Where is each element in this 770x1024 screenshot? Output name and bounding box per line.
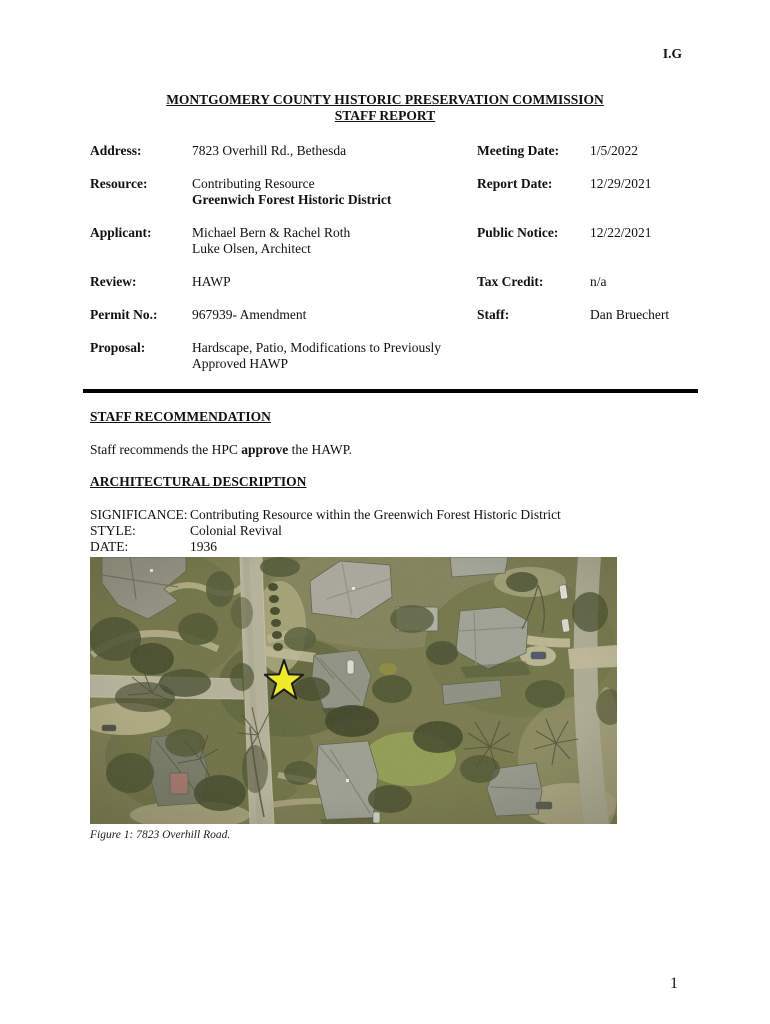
info-table: Address:7823 Overhill Rd., BethesdaMeeti… [90,143,702,372]
field-label: Review: [90,274,192,290]
field-value: 12/22/2021 [590,225,702,241]
field-value-line: Hardscape, Patio, Modifications to Previ… [192,340,477,372]
field-value-line: 967939- Amendment [192,307,477,323]
field-label: Public Notice: [477,225,590,241]
field-label: Staff: [477,307,590,323]
title-line-2: STAFF REPORT [335,108,435,123]
aerial-photo [90,557,617,824]
recommendation-heading: STAFF RECOMMENDATION [90,409,702,425]
page-number: 1 [670,976,678,992]
recommendation-text-bold: approve [241,442,288,457]
field-value-line: 7823 Overhill Rd., Bethesda [192,143,477,159]
field-label: Permit No.: [90,307,192,323]
section-divider [83,389,698,393]
field-label: Address: [90,143,192,159]
field-value: 7823 Overhill Rd., Bethesda [192,143,477,159]
info-table-row: Applicant:Michael Bern & Rachel RothLuke… [90,225,702,257]
field-value: HAWP [192,274,477,290]
document-content: Address:7823 Overhill Rd., BethesdaMeeti… [90,143,702,842]
detail-label: DATE: [90,539,190,555]
field-value-line: Luke Olsen, Architect [192,241,477,257]
field-value: Hardscape, Patio, Modifications to Previ… [192,340,477,372]
description-heading-text: ARCHITECTURAL DESCRIPTION [90,474,306,489]
field-label: Resource: [90,176,192,192]
field-value: 1/5/2022 [590,143,702,159]
field-value: Michael Bern & Rachel RothLuke Olsen, Ar… [192,225,477,257]
field-value: Dan Bruechert [590,307,702,323]
detail-value: Contributing Resource within the Greenwi… [190,507,561,523]
field-label: Tax Credit: [477,274,590,290]
field-value-line: Greenwich Forest Historic District [192,192,477,208]
detail-row: STYLE:Colonial Revival [90,523,702,539]
info-table-row: Review:HAWPTax Credit:n/a [90,274,702,290]
info-table-row: Permit No.:967939- AmendmentStaff:Dan Br… [90,307,702,323]
description-heading: ARCHITECTURAL DESCRIPTION [90,474,702,490]
detail-row: DATE:1936 [90,539,702,555]
figure-caption: Figure 1: 7823 Overhill Road. [90,828,702,842]
info-table-row: Address:7823 Overhill Rd., BethesdaMeeti… [90,143,702,159]
title-line-1: MONTGOMERY COUNTY HISTORIC PRESERVATION … [166,92,604,107]
aerial-grain [90,557,617,824]
info-table-row: Resource:Contributing ResourceGreenwich … [90,176,702,208]
field-value: 967939- Amendment [192,307,477,323]
detail-value: Colonial Revival [190,523,282,539]
field-value-line: HAWP [192,274,477,290]
detail-row: SIGNIFICANCE:Contributing Resource withi… [90,507,702,523]
detail-label: SIGNIFICANCE: [90,507,190,523]
field-value: 12/29/2021 [590,176,702,192]
field-value: n/a [590,274,702,290]
recommendation-text-post: the HAWP. [288,442,352,457]
info-table-row: Proposal:Hardscape, Patio, Modifications… [90,340,702,372]
document-page: I.G MONTGOMERY COUNTY HISTORIC PRESERVAT… [0,0,770,1024]
page-corner-mark: I.G [663,46,682,62]
field-value: Contributing ResourceGreenwich Forest Hi… [192,176,477,208]
field-label: Proposal: [90,340,192,356]
field-value-line: Contributing Resource [192,176,477,192]
field-label: Applicant: [90,225,192,241]
document-title: MONTGOMERY COUNTY HISTORIC PRESERVATION … [0,92,770,124]
field-label: Meeting Date: [477,143,590,159]
field-value-line: Michael Bern & Rachel Roth [192,225,477,241]
detail-label: STYLE: [90,523,190,539]
recommendation-text: Staff recommends the HPC approve the HAW… [90,442,702,458]
aerial-figure: Figure 1: 7823 Overhill Road. [90,557,702,842]
description-details: SIGNIFICANCE:Contributing Resource withi… [90,507,702,555]
field-label: Report Date: [477,176,590,192]
detail-value: 1936 [190,539,217,555]
recommendation-heading-text: STAFF RECOMMENDATION [90,409,271,424]
recommendation-text-pre: Staff recommends the HPC [90,442,241,457]
